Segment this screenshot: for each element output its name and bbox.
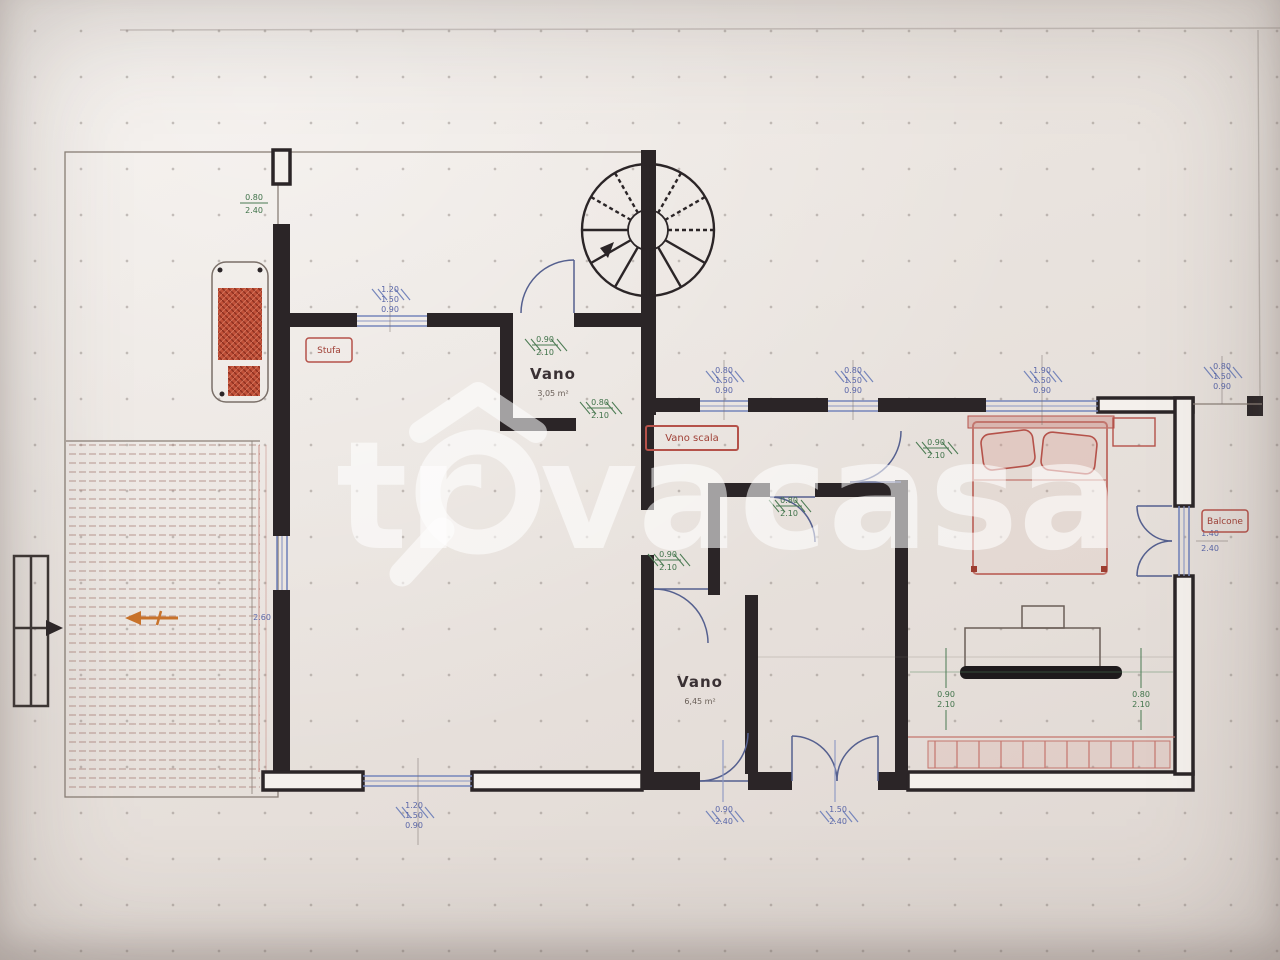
dimension-label: 1.20 1.50 0.90 xyxy=(372,283,410,332)
dim-value: 2.10 xyxy=(536,348,554,357)
dim-value: 0.80 xyxy=(715,366,733,375)
red-label-text: Balcone xyxy=(1207,517,1243,527)
dim-value: 0.80 xyxy=(245,193,263,202)
door-arc xyxy=(654,589,708,643)
dim-value: 1.50 xyxy=(405,811,423,820)
room-label-vano-upper: Vano xyxy=(530,365,576,383)
dim-value: 2.40 xyxy=(715,817,733,826)
dim-value: 1.50 xyxy=(1213,372,1231,381)
dim-value: 2.10 xyxy=(1132,700,1150,709)
dimension-label: 2.60 xyxy=(253,613,271,622)
paper-crease xyxy=(120,28,1280,30)
dim-value: 2.10 xyxy=(937,700,955,709)
floor-plan: 0.80 2.40 0.90 2.10 0.80 2.10 0.90 xyxy=(0,0,1280,960)
window xyxy=(357,316,427,326)
dim-value: 2.60 xyxy=(253,613,271,622)
door-arc xyxy=(521,260,574,313)
floor-plan-photo: 0.80 2.40 0.90 2.10 0.80 2.10 0.90 xyxy=(0,0,1280,960)
dim-value: 0.90 xyxy=(405,821,423,830)
dim-value: 0.90 xyxy=(937,690,955,699)
dimension-label: 1.20 1.50 0.90 xyxy=(396,758,434,845)
dimension-label: 0.90 2.10 xyxy=(525,335,567,357)
dim-value: 0.80 xyxy=(591,398,609,407)
window xyxy=(1179,506,1189,576)
dim-value: 0.90 xyxy=(715,386,733,395)
red-label-stove: Stufa xyxy=(306,338,352,362)
room-area-vano-upper: 3,05 m² xyxy=(537,389,568,398)
dimension-label: 0.80 2.40 xyxy=(240,193,268,215)
dim-value: 0.90 xyxy=(536,335,554,344)
dim-value: 1.40 xyxy=(1201,529,1219,538)
dim-value: 0.90 xyxy=(1213,382,1231,391)
dimension-label: 0.90 2.10 xyxy=(937,648,955,730)
red-label-text: Stufa xyxy=(317,346,341,356)
dim-value: 1.50 xyxy=(715,376,733,385)
dim-value: 1.50 xyxy=(844,376,862,385)
dim-value: 1.20 xyxy=(381,285,399,294)
dim-value: 1.20 xyxy=(405,801,423,810)
entry-arrowhead xyxy=(46,620,63,636)
dim-value: 0.80 xyxy=(844,366,862,375)
dim-value: 0.80 xyxy=(1132,690,1150,699)
boiler-unit xyxy=(212,262,268,402)
dim-value: 1.90 xyxy=(1033,366,1051,375)
dim-value: 1.50 xyxy=(1033,376,1051,385)
dim-value: 2.40 xyxy=(829,817,847,826)
dim-value: 2.40 xyxy=(245,206,263,215)
dim-value: 2.40 xyxy=(1201,544,1219,553)
entry-arrow-marker xyxy=(14,556,63,706)
dim-value: 0.90 xyxy=(1033,386,1051,395)
radiator xyxy=(908,737,1175,768)
room-area-vano-lower: 6,45 m² xyxy=(684,697,715,706)
watermark-text-suffix: vacasa xyxy=(540,410,1120,584)
door-arc xyxy=(792,736,878,802)
dim-value: 0.80 xyxy=(1213,362,1231,371)
dimension-label: 0.80 1.50 0.90 xyxy=(1204,356,1242,404)
dimension-label: 1.50 2.40 xyxy=(820,805,858,826)
dim-value: 0.90 xyxy=(715,805,733,814)
dim-value: 0.90 xyxy=(381,305,399,314)
door-arc xyxy=(1137,506,1172,576)
door-arc xyxy=(700,733,748,802)
dresser-tv xyxy=(960,606,1122,679)
watermark: tr vacasa xyxy=(336,393,1120,584)
dimension-label: 0.90 2.40 xyxy=(706,805,744,826)
boundary-line-right xyxy=(1258,30,1260,398)
dimension-label: 0.80 2.10 xyxy=(1132,648,1150,730)
dim-value: 1.50 xyxy=(829,805,847,814)
room-label-vano-lower: Vano xyxy=(677,673,723,691)
spiral-staircase xyxy=(582,152,714,300)
dim-value: 1.50 xyxy=(381,295,399,304)
dim-value: 0.90 xyxy=(844,386,862,395)
